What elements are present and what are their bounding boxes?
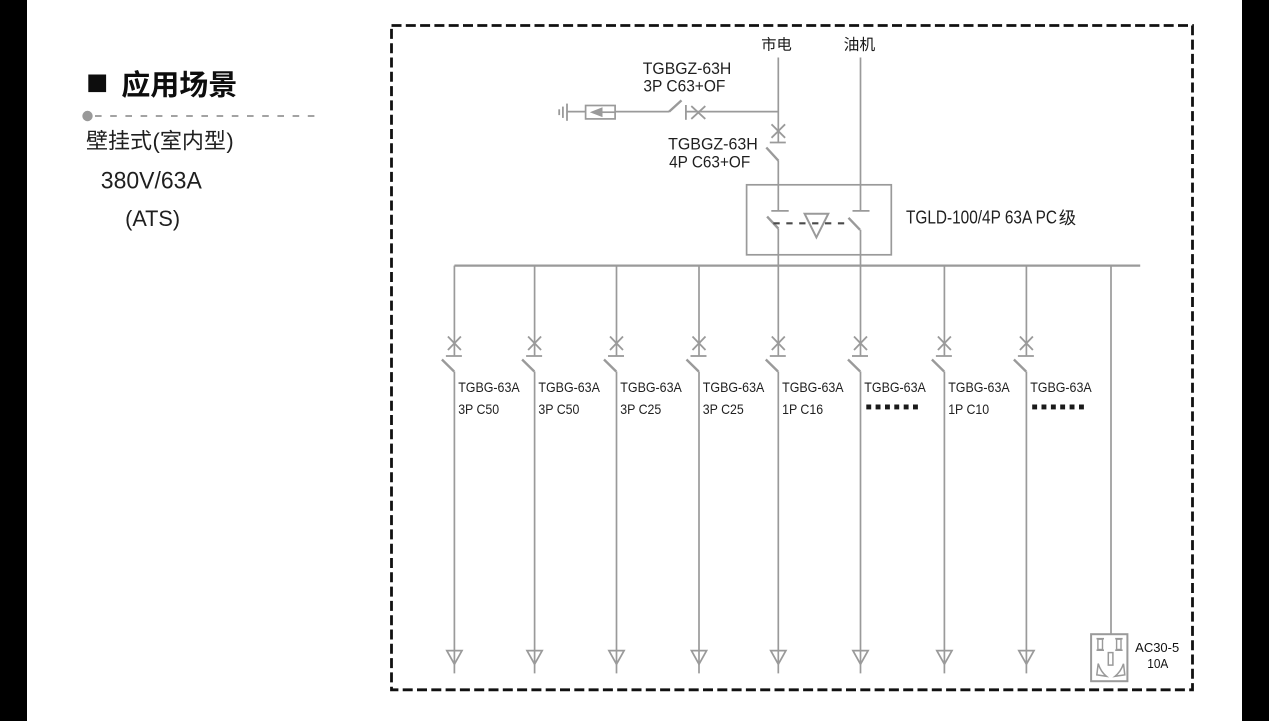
svg-text:TGBG-63A: TGBG-63A	[620, 379, 682, 395]
svg-text:3P C25: 3P C25	[620, 401, 661, 417]
svg-text:TGLD-100/4P 63A PC: TGLD-100/4P 63A PC	[906, 208, 1057, 228]
svg-text:): )	[226, 128, 233, 153]
svg-text:4P C63+OF: 4P C63+OF	[669, 152, 750, 171]
svg-text:3P C50: 3P C50	[458, 401, 499, 417]
svg-text:TGBG-63A: TGBG-63A	[703, 379, 765, 395]
svg-text:TGBG-63A: TGBG-63A	[538, 379, 600, 395]
svg-text:3P C50: 3P C50	[538, 401, 579, 417]
svg-text:380V/63A: 380V/63A	[101, 168, 202, 195]
svg-text:TGBGZ-63H: TGBGZ-63H	[668, 135, 758, 154]
svg-text:3P C63+OF: 3P C63+OF	[643, 77, 725, 96]
svg-text:3P C25: 3P C25	[703, 401, 744, 417]
svg-text:TGBG-63A: TGBG-63A	[1030, 379, 1092, 395]
svg-text:1P C16: 1P C16	[782, 401, 823, 417]
svg-text:TGBG-63A: TGBG-63A	[948, 379, 1010, 395]
svg-text:AC30-5: AC30-5	[1135, 641, 1179, 655]
svg-text:10A: 10A	[1147, 657, 1169, 671]
svg-text:TGBG-63A: TGBG-63A	[458, 379, 520, 395]
svg-text:(: (	[153, 128, 161, 153]
svg-text:(ATS): (ATS)	[125, 206, 180, 231]
svg-text:1P C10: 1P C10	[948, 401, 989, 417]
svg-text:TGBGZ-63H: TGBGZ-63H	[643, 59, 732, 78]
svg-text:TGBG-63A: TGBG-63A	[782, 379, 844, 395]
svg-text:TGBG-63A: TGBG-63A	[864, 379, 926, 395]
